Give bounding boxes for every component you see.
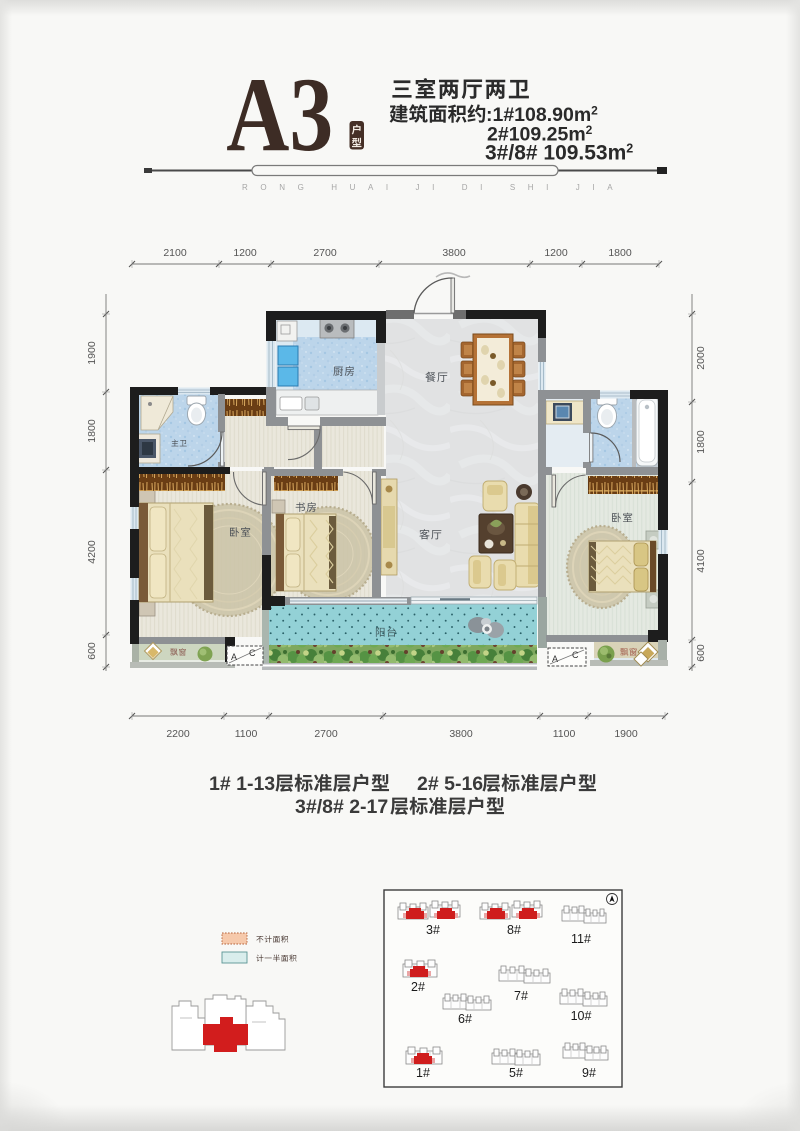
svg-text:1200: 1200 bbox=[233, 247, 257, 259]
svg-text:11#: 11# bbox=[571, 932, 591, 946]
svg-text:3#/8# 2-17: 3#/8# 2-17 bbox=[295, 796, 388, 818]
svg-text:10#: 10# bbox=[571, 1009, 592, 1023]
svg-text:600: 600 bbox=[695, 644, 707, 662]
svg-text:3#/8# 109.53m2: 3#/8# 109.53m2 bbox=[485, 142, 633, 165]
svg-text:2700: 2700 bbox=[314, 728, 338, 740]
svg-text:C: C bbox=[249, 648, 256, 658]
svg-text:1800: 1800 bbox=[86, 419, 98, 443]
svg-text:2200: 2200 bbox=[166, 728, 190, 740]
svg-text:3800: 3800 bbox=[442, 247, 466, 259]
svg-text:2#: 2# bbox=[411, 980, 425, 994]
svg-text:A3: A3 bbox=[226, 56, 333, 174]
svg-text:7#: 7# bbox=[514, 989, 528, 1003]
svg-text:2# 5-16: 2# 5-16 bbox=[417, 773, 483, 795]
svg-text:1900: 1900 bbox=[86, 341, 98, 365]
svg-text:A: A bbox=[552, 654, 558, 664]
svg-text:4200: 4200 bbox=[86, 540, 98, 564]
svg-text:3#: 3# bbox=[426, 923, 440, 937]
svg-text:9#: 9# bbox=[582, 1066, 596, 1080]
svg-text:A: A bbox=[231, 652, 237, 662]
svg-text:3800: 3800 bbox=[449, 728, 473, 740]
svg-text:6#: 6# bbox=[458, 1012, 472, 1026]
svg-text:8#: 8# bbox=[507, 923, 521, 937]
svg-text:1100: 1100 bbox=[553, 728, 576, 740]
svg-text:600: 600 bbox=[86, 642, 98, 660]
svg-text:C: C bbox=[572, 650, 579, 660]
svg-text:1# 1-13: 1# 1-13 bbox=[209, 773, 275, 795]
svg-text:1#: 1# bbox=[416, 1066, 430, 1080]
svg-text:1800: 1800 bbox=[608, 247, 632, 259]
svg-text:RONG HUAI JI DI SHI JIA: RONG HUAI JI DI SHI JIA bbox=[242, 183, 625, 192]
svg-text:1200: 1200 bbox=[544, 247, 568, 259]
svg-text:4100: 4100 bbox=[695, 549, 707, 573]
svg-text:1900: 1900 bbox=[614, 728, 638, 740]
svg-text:5#: 5# bbox=[509, 1066, 523, 1080]
svg-text:2000: 2000 bbox=[695, 346, 707, 370]
svg-text:1100: 1100 bbox=[235, 728, 258, 740]
svg-text:1800: 1800 bbox=[695, 430, 707, 454]
svg-text:2100: 2100 bbox=[163, 247, 187, 259]
svg-text:2700: 2700 bbox=[313, 247, 337, 259]
